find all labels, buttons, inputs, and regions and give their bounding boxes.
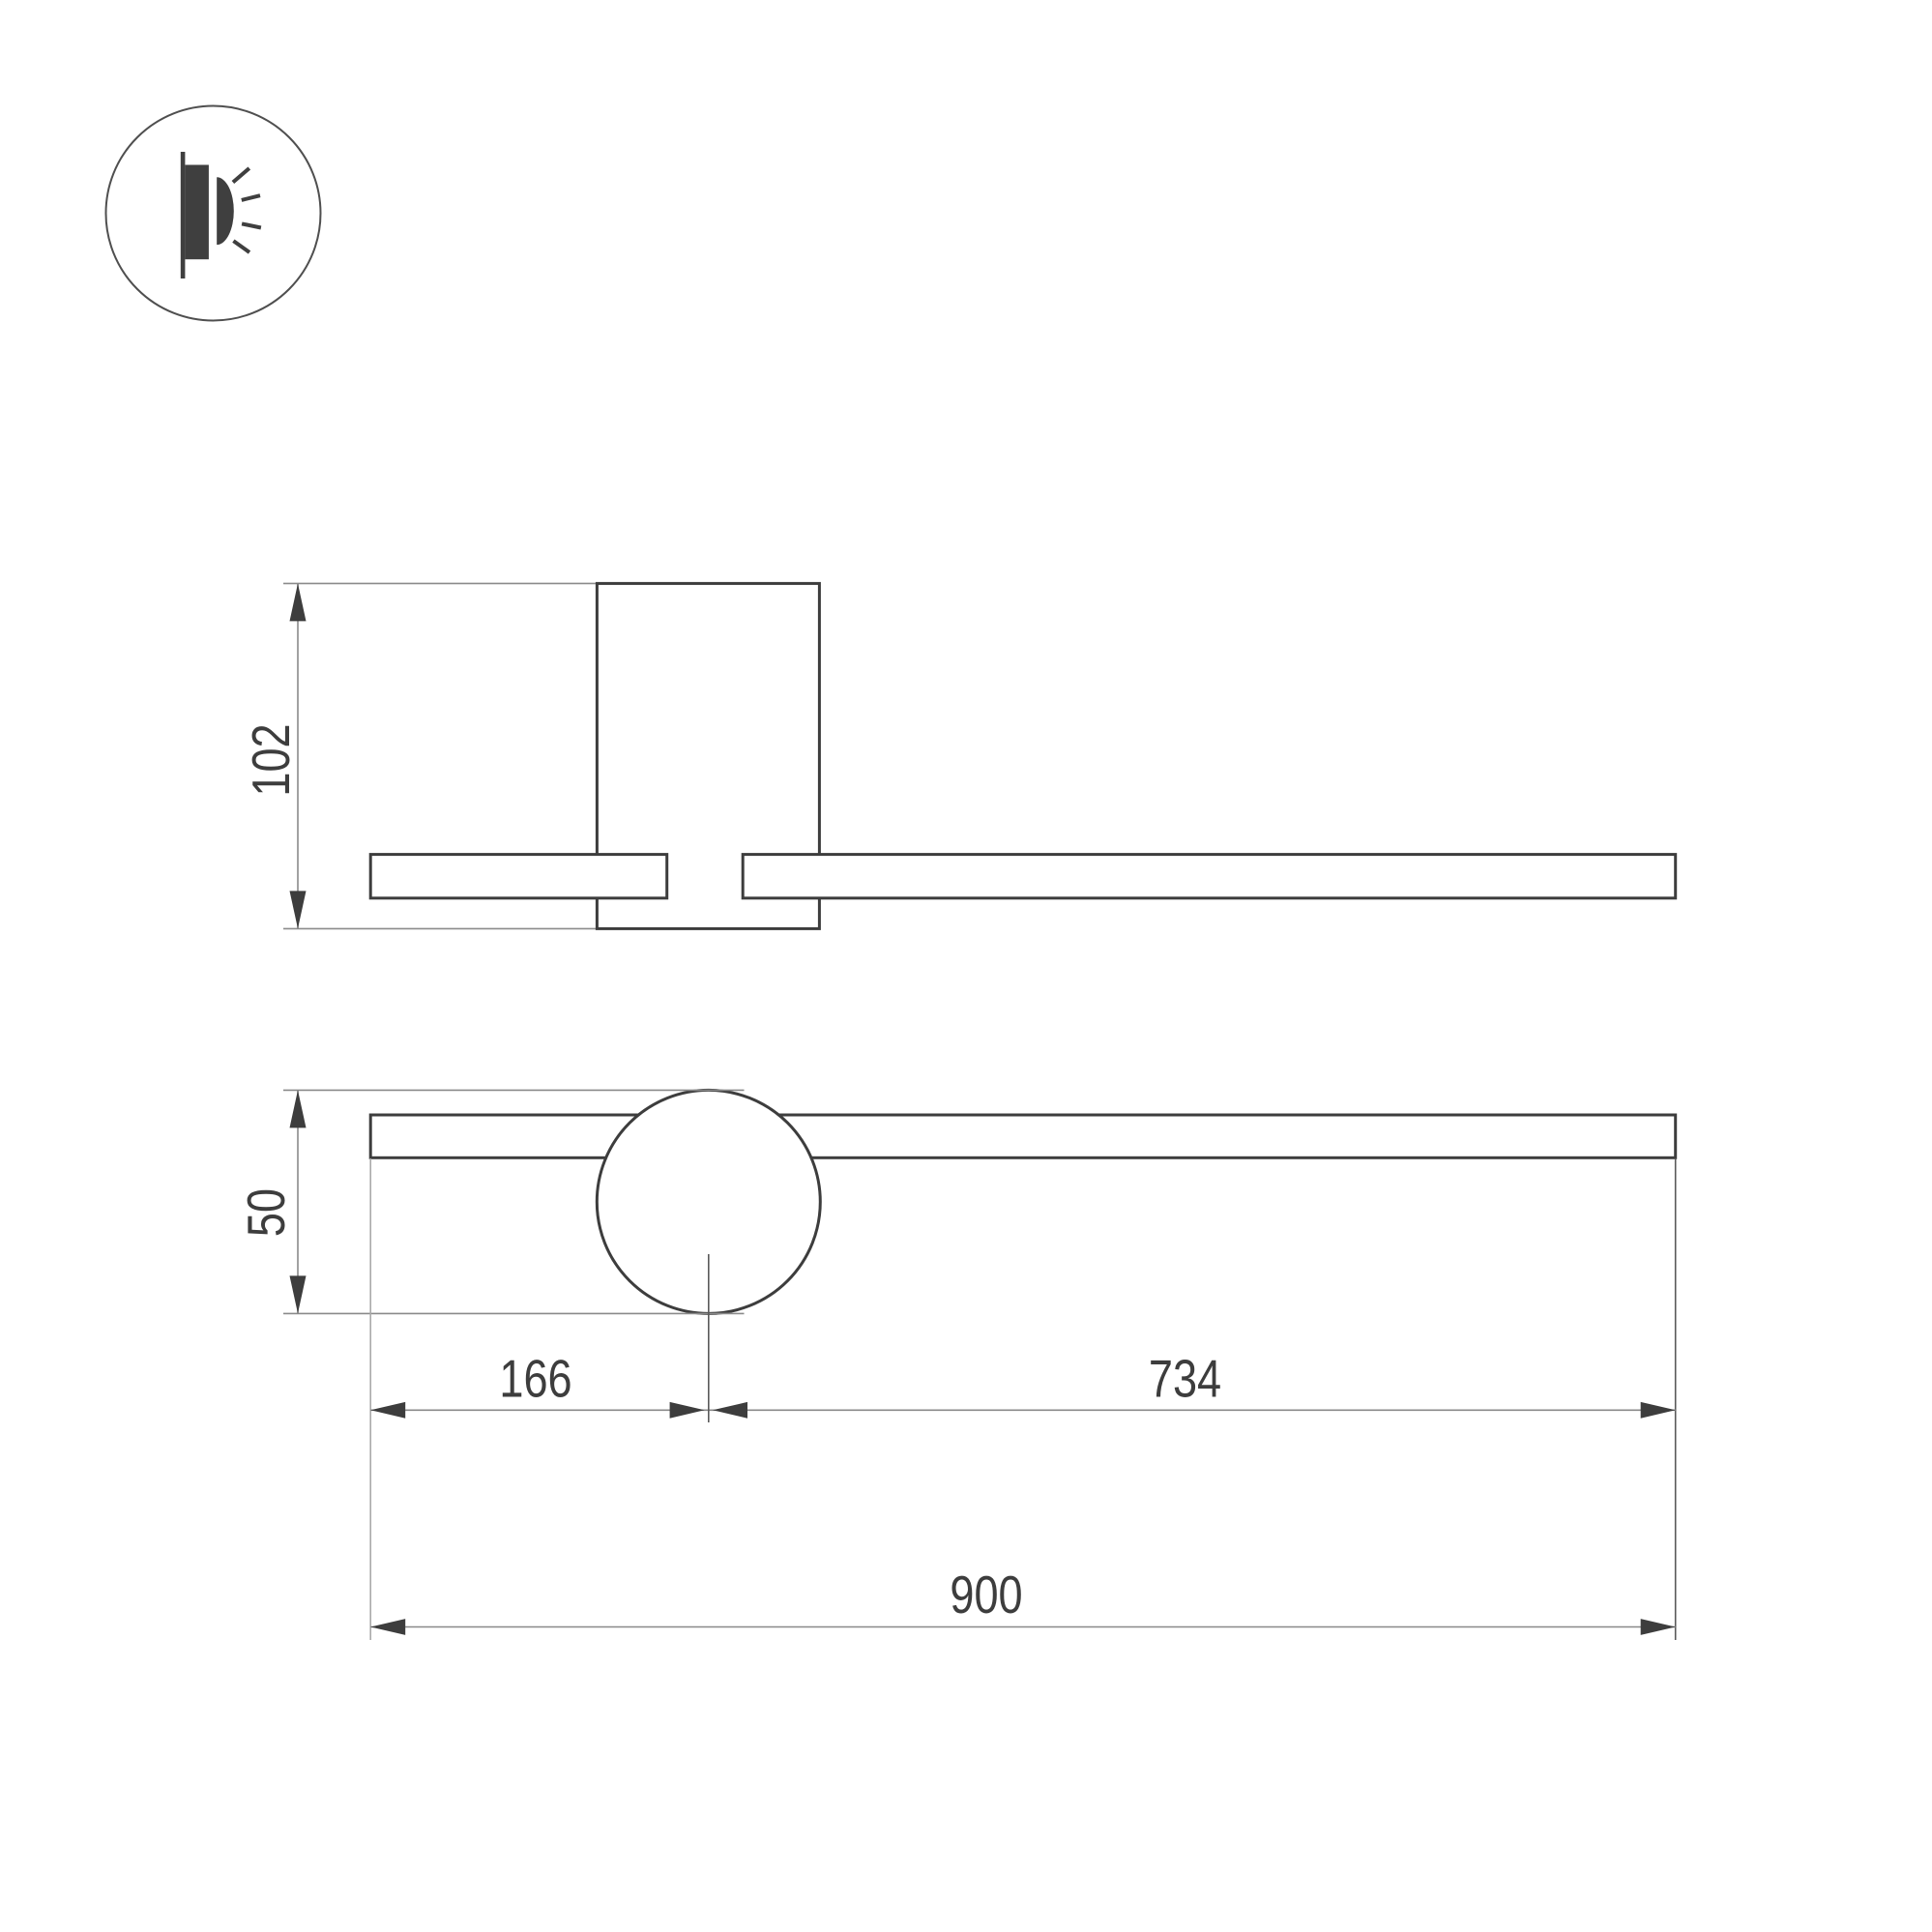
svg-text:734: 734	[1149, 1348, 1221, 1408]
svg-text:166: 166	[499, 1348, 571, 1408]
svg-text:102: 102	[241, 723, 301, 796]
svg-text:50: 50	[236, 1188, 296, 1237]
svg-text:900: 900	[950, 1565, 1022, 1625]
